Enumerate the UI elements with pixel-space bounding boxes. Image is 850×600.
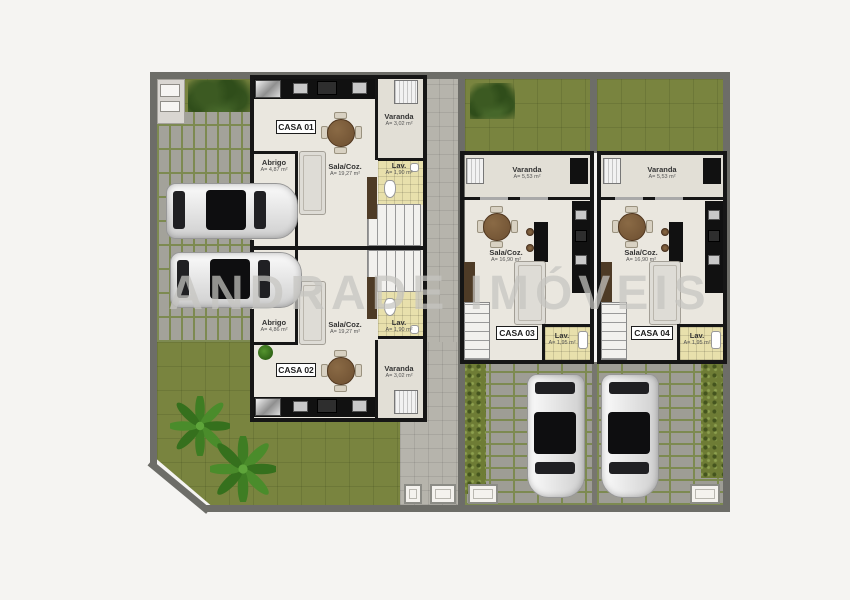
entrance-box-2 [160, 101, 180, 112]
label-sala-casa-04: Sala/Coz. A= 16,90 m² [613, 246, 669, 266]
wall-abrigo-top-casa-01 [252, 151, 298, 154]
room-name: Sala/Coz. [328, 163, 361, 172]
gate-casa-04 [690, 484, 720, 504]
fence-top [150, 72, 730, 79]
tv-panel-casa-02 [367, 277, 377, 319]
laundry-sink-casa-01 [352, 82, 367, 94]
chair-casa-04 [646, 220, 653, 233]
wall-casa-03-right [590, 151, 594, 364]
dining-table-casa-03 [483, 213, 511, 241]
wall-casa-04-right [723, 151, 727, 364]
room-name: Sala/Coz. [489, 249, 522, 258]
palm-tree-2 [210, 436, 276, 502]
chair-casa-01 [334, 112, 347, 119]
room-name: Sala/Coz. [624, 249, 657, 258]
toilet-casa-01 [384, 180, 396, 198]
counter-casa-03 [575, 255, 587, 265]
car-rear-window [177, 260, 189, 298]
room-area: A= 1,95 m² [683, 340, 710, 346]
kitchen-island-casa-04 [669, 222, 683, 262]
car-windshield [254, 191, 266, 229]
room-name: Varanda [647, 166, 676, 175]
car-casa-02 [170, 252, 302, 308]
wall-casa-03-top [460, 151, 594, 155]
room-name: Lav. [392, 162, 406, 171]
kitchen-box-casa-04 [703, 158, 721, 184]
chair-casa-03 [490, 206, 503, 213]
backyard-casa-04 [597, 79, 723, 153]
room-name: Varanda [512, 166, 541, 175]
car-rear-window [535, 382, 575, 394]
room-name: Sala/Coz. [328, 321, 361, 330]
room-name: Lav. [555, 332, 569, 341]
water-tank-casa-01 [394, 80, 418, 104]
room-area: A= 4,87 m² [260, 167, 287, 173]
car-roof [206, 190, 246, 230]
stool-casa-04 [661, 228, 669, 236]
chair-casa-04 [625, 206, 638, 213]
sofa-casa-03 [514, 261, 546, 325]
room-area: A= 5,53 m² [648, 174, 675, 180]
sink-casa-03 [575, 210, 587, 220]
wall-lav-top-casa-03 [542, 324, 592, 327]
tv-panel-casa-04 [601, 262, 612, 302]
kitchen-box-casa-03 [570, 158, 588, 184]
label-lav-casa-01: Lav. A= 1,90 m² [378, 161, 420, 177]
car-rear-window [173, 191, 185, 229]
shrub-top-left [188, 80, 250, 112]
chair-casa-01 [355, 126, 362, 139]
wall-casa-04-top [597, 151, 727, 155]
chair-casa-02 [334, 385, 347, 392]
room-name: Varanda [384, 365, 413, 374]
room-area: A= 1,95 m² [548, 340, 575, 346]
counter-casa-04 [708, 255, 720, 265]
label-sala-casa-01: Sala/Coz. A= 19,27 m² [320, 160, 370, 180]
fridge-casa-01 [255, 80, 281, 98]
window-casa-03 [520, 197, 548, 200]
water-tank-casa-03 [466, 158, 484, 184]
car-roof [534, 412, 576, 454]
water-tank-casa-02 [394, 390, 418, 414]
label-lav-casa-02: Lav. A= 1,90 m² [378, 318, 420, 334]
entrance-box-1 [160, 84, 180, 97]
room-name: Lav. [392, 319, 406, 328]
label-abrigo-casa-01: Abrigo A= 4,87 m² [252, 156, 296, 176]
room-area: A= 3,02 m² [385, 121, 412, 127]
unit-label-casa-02: CASA 02 [276, 363, 316, 377]
car-casa-01 [166, 183, 298, 239]
wall-casa-04-bottom [597, 360, 727, 364]
driveway-divider [592, 362, 597, 505]
gate-walkway [404, 484, 422, 504]
label-varanda-casa-04: Varanda A= 5,53 m² [630, 163, 694, 183]
wall-lav-top-casa-04 [677, 324, 727, 327]
label-lav-casa-03: Lav. A= 1,95 m² [545, 330, 579, 348]
hedge-left-casa-03 [465, 362, 486, 494]
label-varanda-casa-03: Varanda A= 5,53 m² [495, 163, 559, 183]
sofa-casa-04 [649, 261, 681, 325]
car-casa-03 [527, 374, 585, 498]
dining-table-casa-04 [618, 213, 646, 241]
fence-left [150, 72, 157, 467]
floor-plan-image: { "watermark": "ANDRADE IMÓVEIS", "units… [0, 0, 850, 600]
wall-casa-03-bottom [460, 360, 594, 364]
gate-casa-03 [468, 484, 498, 504]
label-lav-casa-04: Lav. A= 1,95 m² [680, 330, 714, 348]
kitchen-island-casa-03 [534, 222, 548, 262]
fence-bottom [205, 505, 730, 512]
stairs-casa-04 [601, 302, 627, 360]
room-name: Abrigo [262, 319, 286, 328]
wall-casa-04-left [597, 151, 601, 364]
wall-casa-03-left [460, 151, 464, 364]
room-area: A= 19,27 m² [330, 329, 360, 335]
car-windshield [258, 260, 270, 298]
room-area: A= 19,27 m² [330, 171, 360, 177]
tv-panel-casa-03 [464, 262, 475, 302]
laundry-sink-casa-02 [352, 400, 367, 412]
cooktop-casa-02 [317, 399, 337, 413]
tv-panel-casa-01 [367, 177, 377, 219]
cooktop-casa-01 [317, 81, 337, 95]
wall-lav-casa-02 [378, 336, 423, 339]
window-casa-04 [655, 197, 683, 200]
chair-casa-01 [334, 147, 347, 154]
car-casa-04 [601, 374, 659, 498]
unit-label-casa-04: CASA 04 [631, 326, 673, 340]
cooktop-casa-04 [708, 230, 720, 242]
unit-label-casa-03: CASA 03 [496, 326, 538, 340]
dining-table-casa-02 [327, 357, 355, 385]
sink-casa-04 [708, 210, 720, 220]
chair-casa-02 [355, 364, 362, 377]
car-windshield [609, 462, 649, 474]
kitchen-sink-casa-02 [293, 401, 308, 412]
room-name: Lav. [690, 332, 704, 341]
water-tank-casa-04 [603, 158, 621, 184]
car-rear-window [609, 382, 649, 394]
room-area: A= 5,53 m² [513, 174, 540, 180]
backyard-divider-fence [590, 79, 597, 153]
cooktop-casa-03 [575, 230, 587, 242]
stairs-casa-03 [464, 302, 490, 360]
room-area: A= 1,90 m² [385, 327, 412, 333]
chair-casa-02 [334, 350, 347, 357]
window-casa-03 [480, 197, 508, 200]
window-casa-04 [615, 197, 643, 200]
wall-abrigo-bottom-casa-02 [252, 342, 298, 345]
fridge-casa-02 [255, 398, 281, 416]
car-roof [210, 259, 250, 299]
tree-backyard [470, 83, 515, 119]
chair-casa-03 [511, 220, 518, 233]
gate-casa-03-pedestrian [430, 484, 456, 504]
label-sala-casa-02: Sala/Coz. A= 19,27 m² [320, 318, 370, 338]
kitchen-sink-casa-01 [293, 83, 308, 94]
toilet-casa-02 [384, 298, 396, 316]
plant-casa-02 [258, 345, 273, 360]
room-name: Abrigo [262, 159, 286, 168]
wall-left-house-bottom [250, 418, 427, 422]
stool-casa-03 [526, 228, 534, 236]
party-wall-casa-01-02 [250, 246, 427, 250]
car-roof [608, 412, 650, 454]
dining-table-casa-01 [327, 119, 355, 147]
room-area: A= 16,90 m² [626, 257, 656, 263]
label-sala-casa-03: Sala/Coz. A= 16,90 m² [478, 246, 534, 266]
unit-label-casa-01: CASA 01 [276, 120, 316, 134]
basin-casa-03 [578, 331, 588, 349]
room-name: Varanda [384, 113, 413, 122]
room-area: A= 4,86 m² [260, 327, 287, 333]
car-windshield [535, 462, 575, 474]
label-abrigo-casa-02: Abrigo A= 4,86 m² [252, 316, 296, 336]
label-varanda-casa-01: Varanda A= 3,02 m² [376, 110, 422, 130]
hedge-right-casa-04 [701, 362, 723, 478]
label-varanda-casa-02: Varanda A= 3,02 m² [376, 362, 422, 382]
room-area: A= 3,02 m² [385, 373, 412, 379]
wall-left-house-top [250, 75, 427, 79]
room-area: A= 1,90 m² [385, 170, 412, 176]
room-area: A= 16,90 m² [491, 257, 521, 263]
